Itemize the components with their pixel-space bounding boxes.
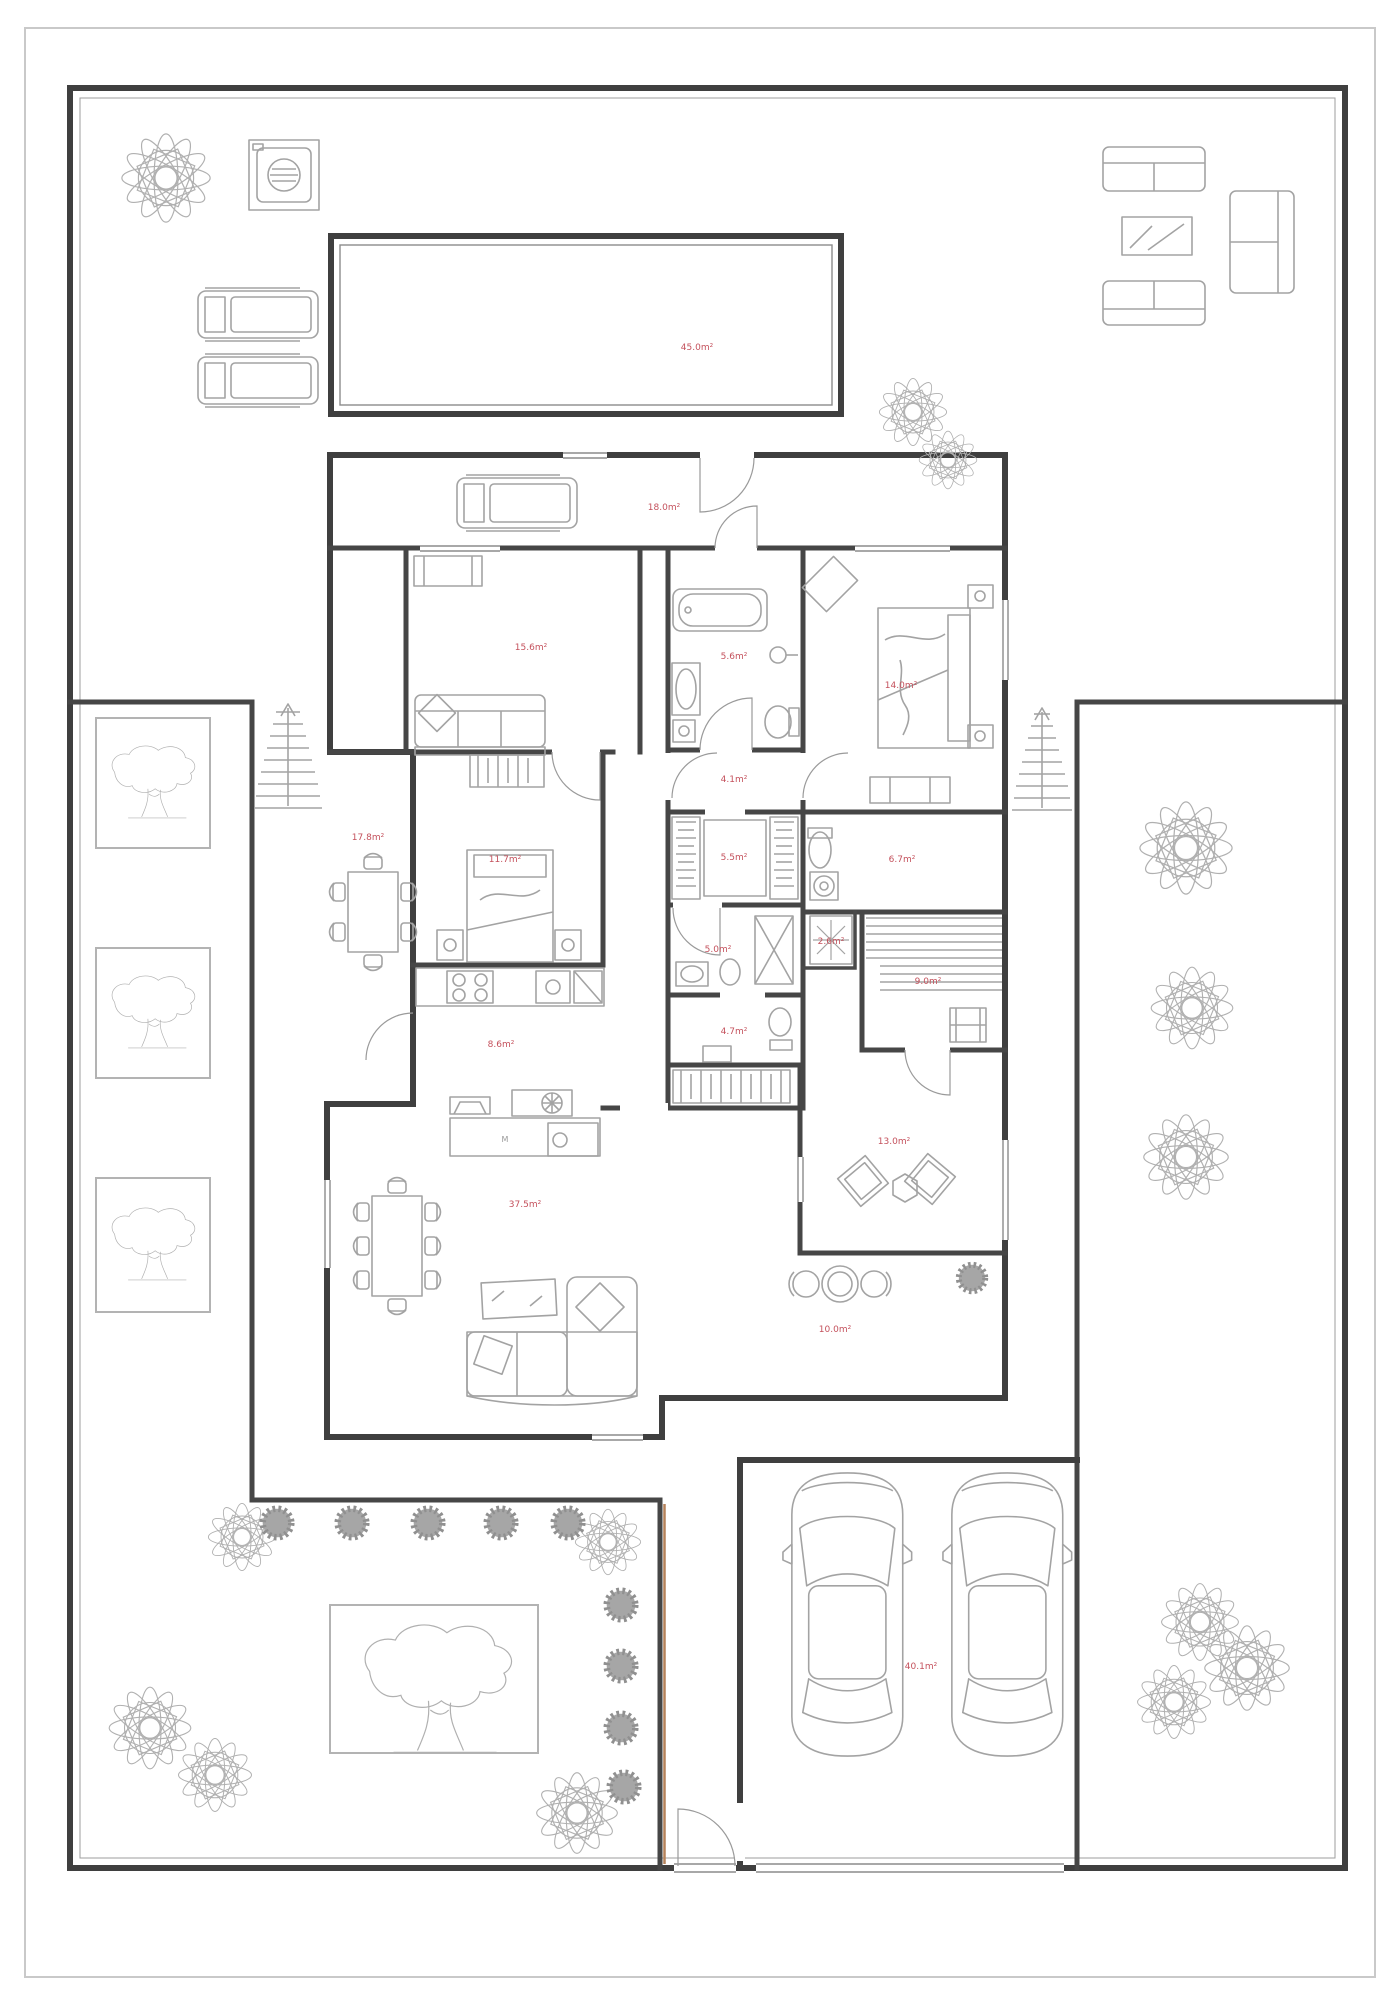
floor-plan-page: M [0, 0, 1400, 2005]
room-label-dining-terrace: 17.8m² [352, 833, 385, 843]
room-label-living-room: 37.5m² [509, 1200, 542, 1210]
room-label-bathroom: 5.6m² [721, 652, 748, 662]
room-label-bedroom-left: 11.7m² [489, 855, 522, 865]
room-label-utility: 6.7m² [889, 855, 916, 865]
room-label-living-upper: 15.6m² [515, 643, 548, 653]
room-label-hallway: 4.7m² [721, 1027, 748, 1037]
room-label-closet: 5.5m² [721, 853, 748, 863]
kitchen-island-label: M [502, 1135, 509, 1144]
room-label-kitchen: 8.6m² [488, 1040, 515, 1050]
room-label-terrace: 10.0m² [819, 1325, 852, 1335]
shrub [959, 1265, 985, 1291]
floor-plan-canvas: M [0, 0, 1400, 2005]
room-label-shower-room: 5.0m² [705, 945, 732, 955]
room-label-sauna: 9.0m² [915, 977, 942, 987]
room-label-corridor: 4.1m² [721, 775, 748, 785]
room-label-lounge: 13.0m² [878, 1137, 911, 1147]
room-label-garage: 40.1m² [905, 1662, 938, 1672]
room-label-steam-shower: 2.6m² [818, 937, 845, 947]
room-label-pool: 45.0m² [681, 343, 714, 353]
room-label-bedroom-right: 14.0m² [885, 681, 918, 691]
room-label-entry-hall: 18.0m² [648, 503, 681, 513]
